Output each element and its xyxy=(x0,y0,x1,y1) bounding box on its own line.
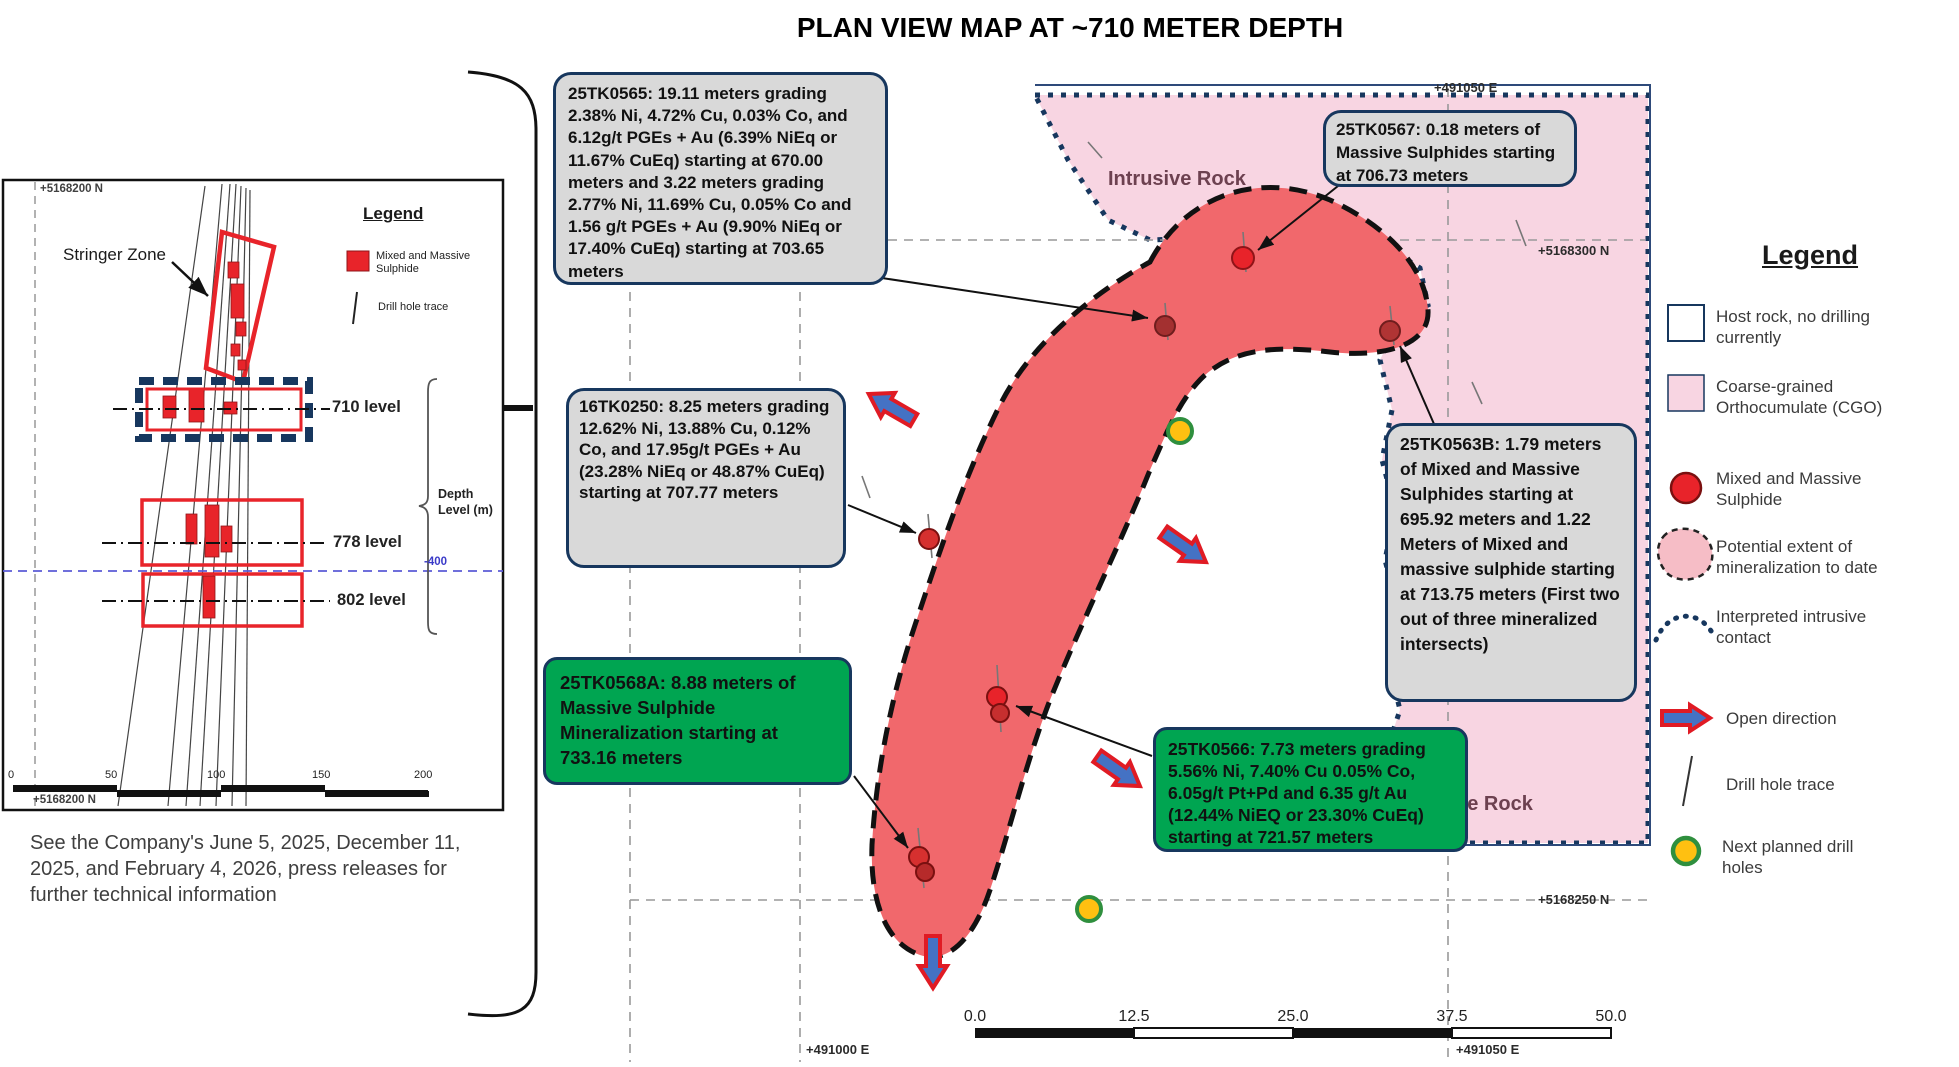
northing-label-lower: +5168250 N xyxy=(1538,892,1609,907)
map-scale-bar xyxy=(975,1028,1611,1038)
inset-northing-bottom: +5168200 N xyxy=(33,794,96,806)
drill-trace-swatch xyxy=(1683,756,1692,806)
intrusive-contact-swatch xyxy=(1656,616,1714,640)
legend-item-planned: Next planned drill holes xyxy=(1722,836,1897,878)
easting-label-bottom-right: +491050 E xyxy=(1456,1042,1519,1057)
callout-25TK0568A: 25TK0568A: 8.88 meters of Massive Sulphi… xyxy=(543,657,852,785)
legend-item-extent: Potential extent of mineralization to da… xyxy=(1716,536,1931,578)
easting-label-bottom-left: +491000 E xyxy=(806,1042,869,1057)
inset-legend-item-sulphide: Mixed and Massive Sulphide xyxy=(376,250,471,276)
sulphide-swatch xyxy=(1671,473,1701,503)
inset-scale-tick: 200 xyxy=(414,769,432,781)
callout-25TK0567: 25TK0567: 0.18 meters of Massive Sulphid… xyxy=(1323,110,1577,187)
inset-northing-top: +5168200 N xyxy=(40,183,103,195)
legend-item-trace: Drill hole trace xyxy=(1726,774,1926,795)
depth-axis-label-2: Level (m) xyxy=(438,503,493,517)
stringer-zone-label: Stringer Zone xyxy=(63,245,166,265)
scale-tick: 25.0 xyxy=(1268,1008,1318,1026)
elevation-label: -400 xyxy=(424,556,447,568)
easting-label-top: +491050 E xyxy=(1434,80,1497,95)
extent-swatch xyxy=(1658,529,1712,580)
legend-swatches xyxy=(1656,305,1714,864)
inset-legend-item-trace: Drill hole trace xyxy=(378,301,448,313)
open-direction-swatch xyxy=(1662,705,1710,731)
legend-item-open-direction: Open direction xyxy=(1726,708,1926,729)
callout-25TK0566: 25TK0566: 7.73 meters grading 5.56% Ni, … xyxy=(1153,727,1468,852)
legend-item-cgo: Coarse-grained Orthocumulate (CGO) xyxy=(1716,376,1931,418)
northing-label-upper: +5168300 N xyxy=(1538,243,1609,258)
scale-tick: 50.0 xyxy=(1586,1008,1636,1026)
inset-scale-tick: 100 xyxy=(207,769,225,781)
level-label-710: 710 level xyxy=(332,398,401,417)
legend-title: Legend xyxy=(1762,240,1858,271)
scale-tick: 0.0 xyxy=(950,1008,1000,1026)
cgo-swatch xyxy=(1668,375,1704,411)
inset-scale-tick: 0 xyxy=(8,769,14,781)
planned-hole-swatch xyxy=(1673,838,1699,864)
inset-scale-tick: 150 xyxy=(312,769,330,781)
legend-item-sulphide: Mixed and Massive Sulphide xyxy=(1716,468,1911,510)
page-title: PLAN VIEW MAP AT ~710 METER DEPTH xyxy=(600,12,1540,44)
callout-16TK0250: 16TK0250: 8.25 meters grading 12.62% Ni,… xyxy=(566,388,846,568)
legend-item-host-rock: Host rock, no drilling currently xyxy=(1716,306,1921,348)
press-release-caption: See the Company's June 5, 2025, December… xyxy=(30,830,482,908)
scale-tick: 12.5 xyxy=(1109,1008,1159,1026)
depth-axis-label-1: Depth xyxy=(438,487,473,501)
plan-view-map-figure: PLAN VIEW MAP AT ~710 METER DEPTH Intrus… xyxy=(0,0,1959,1067)
legend-item-contact: Interpreted intrusive contact xyxy=(1716,606,1911,648)
level-label-802: 802 level xyxy=(337,591,406,610)
inset-scale-tick: 50 xyxy=(105,769,117,781)
host-rock-swatch xyxy=(1668,305,1704,341)
intrusive-rock-label-top: Intrusive Rock xyxy=(1108,168,1246,191)
inset-legend-title: Legend xyxy=(363,204,423,224)
scale-tick: 37.5 xyxy=(1427,1008,1477,1026)
callout-25TK0563B: 25TK0563B: 1.79 meters of Mixed and Mass… xyxy=(1385,423,1637,702)
callout-25TK0565: 25TK0565: 19.11 meters grading 2.38% Ni,… xyxy=(553,72,888,285)
level-label-778: 778 level xyxy=(333,533,402,552)
